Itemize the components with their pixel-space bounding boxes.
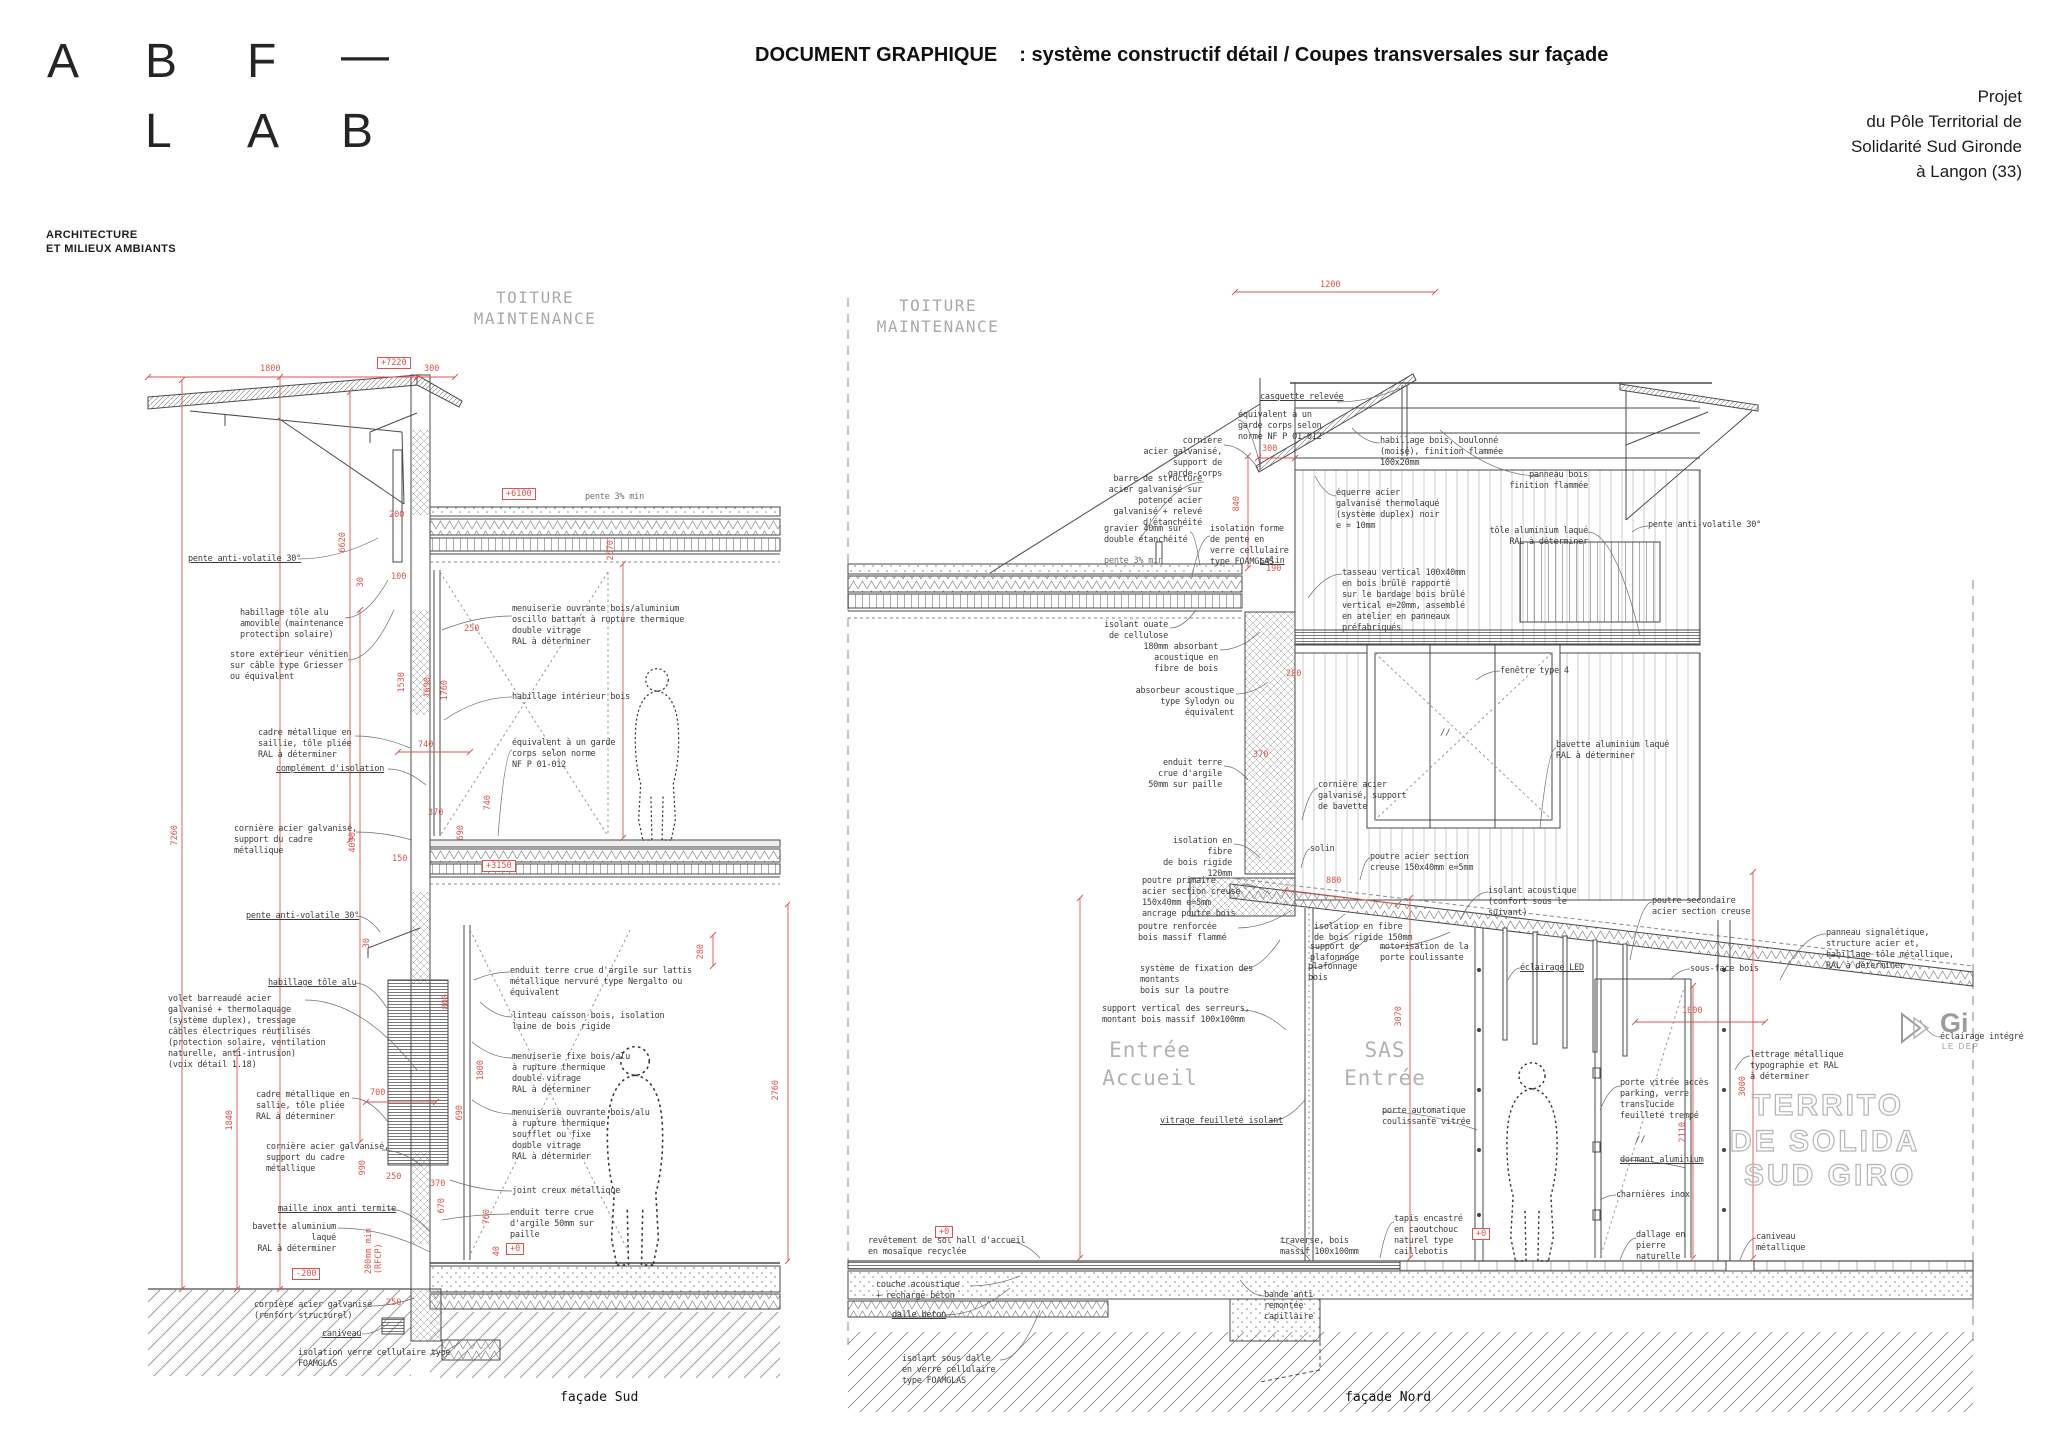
annotation-label: isolation en fibre de bois rigide 120mm: [1154, 836, 1232, 880]
annotation-label: revêtement de sol hall d'accueil en mosa…: [868, 1236, 1025, 1258]
drawing-caption: façade Sud: [560, 1390, 638, 1407]
document-title-rest: : système constructif détail / Coupes tr…: [1019, 44, 1608, 66]
ground-slab: [430, 1263, 780, 1378]
logo-letter: L: [145, 104, 172, 159]
windows: [434, 570, 470, 1260]
page: A B F — L A B ARCHITECTURE ET MILIEUX AM…: [0, 0, 2048, 1448]
annotation-label: couche acoustique + recharge béton: [876, 1280, 960, 1302]
signage-text: TERRITO: [1752, 1086, 1904, 1125]
zone-label: TOITURE MAINTENANCE: [460, 288, 610, 330]
annotation-label: dormant aluminium: [1620, 1155, 1704, 1166]
hoods: [368, 413, 420, 958]
annotation-label: charnières inox: [1616, 1190, 1690, 1201]
dimension-label: 30: [356, 577, 366, 587]
dimension-label: 690: [455, 1105, 465, 1120]
project-block: Projet du Pôle Territorial de Solidarité…: [1851, 84, 2022, 184]
annotation-label: habillage intérieur bois: [512, 692, 630, 703]
annotation-label: bande anti remontée capillaire: [1264, 1290, 1313, 1323]
dimension-label: 690: [456, 825, 466, 840]
dimension-label: 250: [386, 1172, 401, 1182]
human-silhouette: [635, 669, 678, 840]
annotation-label: habillage bois, boulonné (moisé), finiti…: [1380, 436, 1503, 469]
dimension-label: 190: [1266, 564, 1281, 574]
annotation-label: cadre métallique en sallie, tôle pliée R…: [256, 1090, 349, 1123]
annotation-label: store extérieur vénitien sur câble type …: [230, 650, 348, 683]
annotation-label: //: [1635, 1135, 1645, 1147]
dimension-label: 7260: [170, 825, 180, 845]
logo-letter: A: [47, 34, 79, 89]
dimension-label: 200: [1286, 669, 1301, 679]
dimension-label: 200mm min (RFCP): [364, 1228, 384, 1274]
logo-letter: A: [247, 104, 279, 159]
annotation-label: porte automatique coulissante vitrée: [1382, 1106, 1471, 1128]
annotation-label: bavette aluminium laqué RAL à déterminer: [1556, 740, 1669, 762]
annotation-label: menuiserie fixe bois/alu à rupture therm…: [512, 1052, 630, 1096]
dimension-label: 6620: [338, 532, 348, 552]
annotation-label: poutre secondaire acier section creuse: [1652, 896, 1750, 918]
dimension-label: 1000: [1682, 1006, 1702, 1016]
dimension-label: 990: [358, 1160, 368, 1175]
logo-letter: B: [341, 104, 373, 159]
annotation-label: sous-face bois: [1690, 964, 1759, 975]
annotation-label: lettrage métallique typographie et RAL à…: [1750, 1050, 1843, 1083]
annotation-label: isolant acoustique (confort sous le suiv…: [1488, 886, 1577, 919]
tagline-line: ET MILIEUX AMBIANTS: [46, 242, 176, 256]
annotation-label: traverse, bois massif 100x100mm: [1280, 1236, 1359, 1258]
dimension-label: 740: [483, 795, 493, 810]
zone-label: TOITURE MAINTENANCE: [858, 296, 1018, 338]
dimension-label: 2110: [1678, 1122, 1688, 1142]
annotation-label: habillage tôle alu: [268, 978, 357, 989]
document-title-label: DOCUMENT GRAPHIQUE: [755, 44, 997, 66]
annotation-label: maille inox anti termite: [278, 1204, 396, 1215]
dimension-label: +0: [1472, 1228, 1490, 1240]
logo-letter: —: [341, 28, 389, 83]
dimension-label: 1800: [476, 1060, 486, 1080]
annotation-label: vitrage feuilleté isolant: [1160, 1116, 1283, 1127]
annotation-label: panneau bois finition flammée: [1496, 470, 1588, 492]
annotation-label: habillage tôle alu amovible (maintenance…: [240, 608, 343, 641]
dimension-label: +7220: [377, 357, 411, 369]
zone-label: Entrée Accueil: [1070, 1036, 1230, 1093]
annotation-label: pente anti-volatile 30°: [1648, 520, 1761, 531]
signage-text: SUD GIRO: [1744, 1156, 1916, 1195]
gironde-logo-subtext: LE DEP: [1942, 1042, 1979, 1051]
annotation-label: plafonnage bois: [1308, 962, 1357, 984]
annotation-label: absorbeur acoustique type Sylodyn ou équ…: [1108, 686, 1234, 719]
annotation-label: isolant sous dalle en verre cellulaire t…: [902, 1354, 995, 1387]
annotation-label: cornière acier galvanisé, support du cad…: [234, 824, 357, 857]
gironde-chevron-icon: [1900, 1010, 1938, 1050]
dimension-label: 4090: [348, 832, 358, 852]
logo-letter: B: [145, 34, 177, 89]
tagline-line: ARCHITECTURE: [46, 228, 176, 242]
dimension-label: 100: [391, 572, 406, 582]
dimension-label: 700: [370, 1088, 385, 1098]
dimension-label: 250: [386, 1298, 401, 1308]
dimension-label: 760: [482, 1209, 492, 1224]
project-line: Projet: [1851, 84, 2022, 109]
dimension-label: 740: [418, 740, 433, 750]
logo-tagline: ARCHITECTURE ET MILIEUX AMBIANTS: [46, 228, 176, 256]
logo-letter: F: [247, 34, 276, 89]
facade-sud-panel: TOITURE MAINTENANCEpente 3% minpente ant…: [130, 280, 790, 1420]
annotation-label: éclairage LED: [1520, 963, 1584, 974]
dimension-label: 800: [441, 994, 451, 1009]
annotation-label: joint creux métallique: [512, 1186, 620, 1197]
dimension-label: 370: [1253, 750, 1268, 760]
drawing-caption: façade Nord: [1345, 1390, 1431, 1407]
dimension-label: 670: [437, 1198, 447, 1213]
annotation-label: caniveau métallique: [1756, 1232, 1805, 1254]
right-canopy: [1620, 384, 1758, 520]
wall-section: [411, 375, 430, 1289]
dimension-label: 1690: [423, 677, 433, 697]
annotation-label: complément d'isolation: [276, 764, 384, 775]
dimension-label: 370: [430, 1179, 445, 1189]
annotation-label: enduit terre crue d'argile 50mm sur pail…: [510, 1208, 594, 1241]
human-silhouette: [1507, 1063, 1557, 1261]
annotation-label: panneau signalétique, structure acier et…: [1826, 928, 1954, 972]
annotation-label: pente 3% min: [585, 492, 644, 503]
annotation-label: solin: [1310, 844, 1335, 855]
annotation-label: système de fixation des montants bois su…: [1140, 964, 1253, 997]
dimension-label: +6100: [502, 488, 536, 500]
dimension-label: 300: [1262, 444, 1277, 454]
annotation-label: cadre métallique en saillie, tôle pliée …: [258, 728, 351, 761]
dimension-label: 370: [428, 808, 443, 818]
dimension-label: 280: [696, 944, 706, 959]
annotation-label: poutre renforcée bois massif flammé: [1138, 922, 1227, 944]
annotation-label: tasseau vertical 100x40mm en bois brûlé …: [1342, 568, 1465, 634]
annotation-label: caniveau: [322, 1329, 361, 1340]
annotation-label: cornière acier galvanisé (renfort struct…: [254, 1300, 372, 1322]
dimension-label: 3000: [1738, 1076, 1748, 1096]
dimension-label: -200: [292, 1268, 320, 1280]
dimension-label: 1760: [440, 680, 450, 700]
dimension-label: 1530: [397, 672, 407, 692]
abflab-logo: A B F — L A B: [47, 34, 407, 204]
annotation-label: tôle aluminium laqué RAL à déterminer: [1460, 526, 1588, 548]
project-line: du Pôle Territorial de: [1851, 109, 2022, 134]
annotation-label: support vertical des serreurs, montant b…: [1102, 1004, 1250, 1026]
canopy: [148, 375, 462, 504]
annotation-label: éclairage intégré: [1940, 1032, 2024, 1043]
dimension-label: +0: [935, 1226, 953, 1238]
project-line: à Langon (33): [1851, 159, 2022, 184]
annotation-label: cornière acier galvanisé, support de bav…: [1318, 780, 1407, 813]
annotation-label: volet barreaudé acier galvanisé + thermo…: [168, 994, 325, 1071]
annotation-label: absorbant acoustique en fibre de bois: [1134, 642, 1218, 675]
dimension-label: 1200: [1320, 280, 1340, 290]
dimension-label: +0: [506, 1243, 524, 1255]
annotation-label: fenêtre type 4: [1500, 666, 1569, 677]
annotation-label: linteau caisson bois, isolation laine de…: [512, 1011, 664, 1033]
annotation-label: pente anti-volatile 30°: [188, 554, 301, 565]
annotation-label: équivalent à un garde corps selon norme …: [1238, 410, 1322, 443]
annotation-label: pente 3% min: [1104, 556, 1163, 567]
annotation-label: pente anti-volatile 30°: [246, 911, 359, 922]
dimension-label: 2670: [606, 540, 616, 560]
annotation-label: cornière acier galvanisé, support du cad…: [266, 1142, 389, 1175]
volet-louver: [388, 980, 448, 1165]
dimension-label: 2760: [771, 1080, 781, 1100]
annotation-label: gravier 40mm sur double étanchéité: [1104, 524, 1188, 546]
document-title: DOCUMENT GRAPHIQUE: système constructif …: [755, 44, 1608, 67]
annotation-label: barre de structure acier galvanisé sur p…: [1098, 474, 1202, 529]
annotation-label: bavette aluminium laqué RAL à déterminer: [240, 1222, 336, 1255]
entry-roof-slab: [848, 542, 1242, 618]
annotation-label: motorisation de la porte coulissante: [1380, 942, 1469, 964]
annotation-label: isolation en fibre de bois rigide 150mm: [1314, 922, 1412, 944]
annotation-label: menuiserie ouvrante bois/aluminium oscil…: [512, 604, 684, 648]
dimension-label: 3070: [1394, 1006, 1404, 1026]
roof-slab: [430, 507, 780, 562]
project-line: Solidarité Sud Gironde: [1851, 134, 2022, 159]
annotation-label: casquette relevée: [1260, 392, 1344, 403]
annotation-label: poutre primaire acier section creuse 150…: [1142, 876, 1240, 920]
dimension-label: 150: [392, 854, 407, 864]
dimension-label: 1840: [225, 1110, 235, 1130]
annotation-label: équerre acier galvanisé thermolaqué (sys…: [1336, 488, 1439, 532]
dimension-label: 40: [492, 1246, 502, 1256]
facade-sud-drawing: [130, 280, 790, 1420]
eclairage-bars: [1503, 928, 1627, 1056]
facade-sud-annotations: [130, 280, 790, 1420]
dimension-label: 1800: [260, 364, 280, 374]
facade-nord-panel: Gi LE DEP TOITURE MAINTENANCEcasquette r…: [840, 280, 2048, 1420]
annotation-label: enduit terre crue d'argile 50mm sur pail…: [1138, 758, 1222, 791]
dimension-label: 250: [464, 624, 479, 634]
annotation-label: dalle béton: [892, 1310, 946, 1321]
dimension-label: 840: [1232, 496, 1242, 511]
annotation-label: //: [1440, 728, 1450, 740]
dimension-label: 300: [424, 364, 439, 374]
annotation-label: enduit terre crue d'argile sur lattis mé…: [510, 966, 692, 999]
zone-label: SAS Entrée: [1310, 1036, 1460, 1093]
dimension-label: 200: [389, 510, 404, 520]
annotation-label: isolation verre cellulaire type FOAMGLAS: [298, 1348, 450, 1370]
annotation-label: menuiserie ouvrante bois/alu à rupture t…: [512, 1108, 650, 1163]
annotation-label: équivalent à un garde corps selon norme …: [512, 738, 615, 771]
annotation-label: poutre acier section creuse 150x40mm e=5…: [1370, 852, 1473, 874]
annotation-label: dallage en pierre naturelle: [1636, 1230, 1685, 1263]
annotation-label: porte vitrée accès parking, verre transl…: [1620, 1078, 1709, 1122]
annotation-label: tapis encastré en caoutchouc naturel typ…: [1394, 1214, 1463, 1258]
annotation-label: support de plafonnage: [1310, 942, 1359, 964]
dimension-label: +3150: [482, 860, 516, 872]
dimension-label: 880: [1326, 876, 1341, 886]
dimension-label: 30: [362, 938, 372, 948]
